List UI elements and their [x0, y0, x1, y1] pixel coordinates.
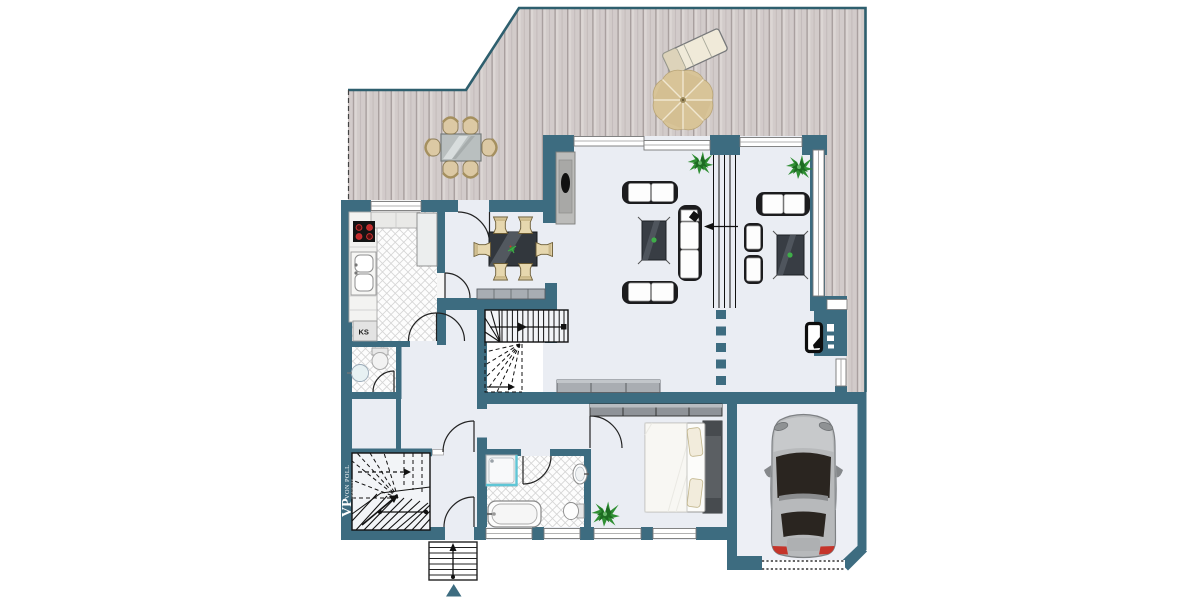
svg-text:KS: KS: [359, 328, 369, 337]
svg-text:IMMOBILIEN: IMMOBILIEN: [350, 478, 354, 498]
svg-text:VP: VP: [340, 498, 355, 517]
